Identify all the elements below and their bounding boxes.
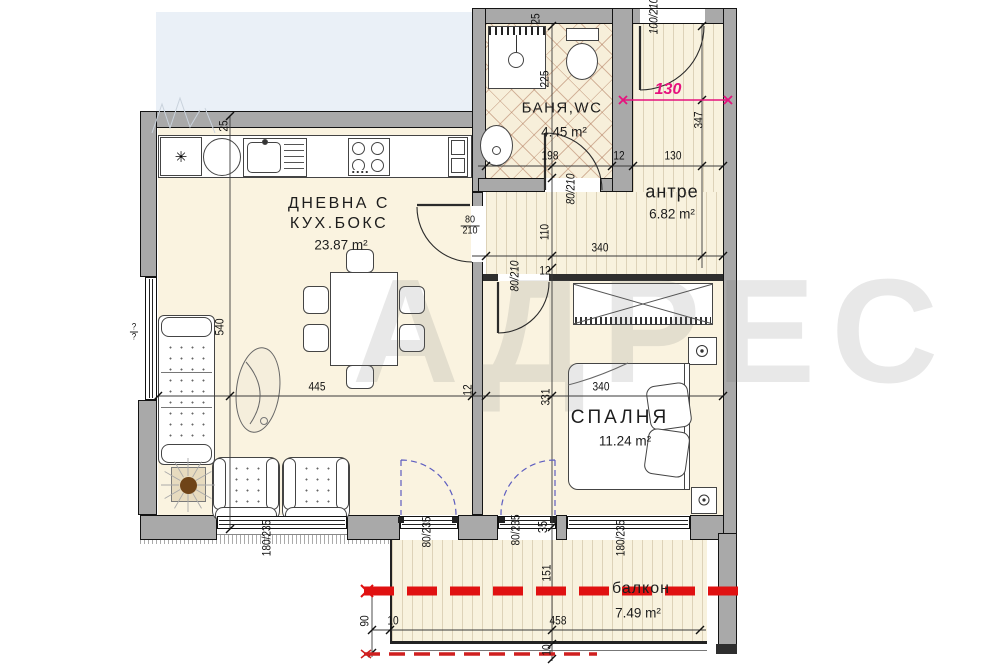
dim-bath-width: 198: [542, 151, 559, 163]
bathroom-area: 4.45 m²: [541, 125, 587, 140]
dim-bath-door: 80/210: [566, 174, 578, 205]
burner-icon: [371, 159, 384, 172]
dim-window-left: ??: [130, 323, 138, 342]
dim-balcony-door-bedroom: 80/235: [511, 515, 523, 546]
dim-35: 35: [537, 521, 550, 533]
door-hinge-block: [398, 517, 404, 523]
living-room-name-line2: КУХ.БОКС: [290, 215, 388, 233]
wall-left-upper: [140, 111, 157, 277]
burner-icon: [352, 142, 365, 155]
dim-living-door: 80210: [461, 216, 480, 237]
wall-bathroom-bottom-a: [478, 178, 545, 192]
bathtub-wall-edge: [489, 27, 545, 35]
dim-bedroom-width: 340: [593, 382, 610, 394]
wall-bottom-pier3: [556, 515, 567, 540]
agency-watermark: АДРЕС: [352, 258, 954, 406]
window-living: [217, 516, 347, 529]
door-hinge-block: [499, 517, 505, 523]
washbasin-drain: [492, 146, 501, 155]
armchair-arm: [336, 458, 349, 510]
balcony-name: балкон: [612, 580, 670, 598]
dim-hall-height: 347: [694, 112, 706, 129]
window-left: [145, 277, 157, 400]
balcony-area: 7.49 m²: [615, 606, 661, 621]
armchair-arm: [213, 458, 226, 510]
sofa-seam: [161, 372, 212, 373]
dim-living-length: 445: [309, 382, 326, 394]
dim-balcony-length: 458: [550, 616, 567, 628]
dim-wall12-living: 12: [463, 384, 475, 395]
door-hinge-block: [550, 517, 556, 523]
hallway-name: антре: [645, 182, 698, 203]
bedroom-name: СПАЛНЯ: [571, 407, 669, 429]
stove-knobs: [351, 170, 369, 174]
plant-icon: [180, 477, 197, 494]
nightstand: [691, 487, 717, 514]
armchair-arm: [266, 458, 279, 510]
wall-left-lower: [138, 400, 157, 515]
hallway-area: 6.82 m²: [649, 207, 695, 222]
armchair-arm: [283, 458, 296, 510]
wall-balcony-right: [718, 533, 737, 648]
door-hinge-block: [452, 517, 458, 523]
wall-living-top: [140, 111, 478, 128]
dim-window-living: 180/235: [262, 520, 274, 557]
wall-bottom-pier2: [458, 515, 498, 540]
dim-balcony-10b: 10: [542, 644, 554, 655]
sink-drainer: [284, 144, 304, 172]
dim-balcony-width: 151: [542, 565, 554, 582]
bathtub-drain-icon: [508, 52, 524, 68]
bathtub-faucet-line: [516, 35, 517, 53]
toilet-icon: [566, 43, 598, 80]
wall-living-bedroom-a: [472, 192, 483, 207]
dim-corridor-width: 110: [540, 224, 552, 240]
sofa-armrest: [161, 444, 212, 463]
window-bedroom: [567, 516, 690, 529]
sofa-armrest: [161, 317, 212, 337]
toilet-tank: [566, 28, 599, 41]
dim-bath-wall-25: 25: [531, 13, 543, 24]
washing-machine-icon: ✳: [160, 137, 202, 176]
bathroom-name: БАНЯ,WC: [522, 100, 603, 117]
living-room-name-line1: ДНЕВНА С: [288, 195, 390, 213]
burner-icon: [371, 142, 384, 155]
dim-bedroom-height: 331: [541, 389, 553, 406]
wall-bathroom-left: [472, 8, 486, 192]
dim-balcony-10a: 10: [387, 616, 398, 628]
dining-chair: [303, 286, 329, 314]
wall-bottom-left: [140, 515, 217, 540]
dim-bathtub-225: 225: [540, 71, 552, 88]
dining-chair: [303, 324, 329, 352]
living-room-area: 23.87 m²: [314, 238, 367, 253]
dim-kitchen-wall: 25: [219, 120, 231, 131]
faucet-icon: [262, 139, 268, 145]
sofa-cushions: [161, 338, 212, 443]
armchair-cushion: [297, 459, 335, 509]
adjacent-area: [156, 12, 478, 111]
fridge-inner: [451, 158, 465, 173]
dim-balcony-90: 90: [360, 615, 372, 626]
dim-wall12-bedroom: 12: [539, 266, 550, 278]
dim-living-width: 540: [215, 319, 227, 336]
sofa-seam: [161, 407, 212, 408]
dim-hall-width: 130: [665, 151, 682, 163]
dim-balcony-door-living: 80/235: [422, 517, 434, 548]
wall-bottom-pier1: [347, 515, 400, 540]
washer-glyph: ✳: [175, 149, 188, 166]
armchair-cushion: [227, 459, 265, 509]
sink-bowl: [247, 142, 281, 173]
dim-corridor-length: 340: [592, 243, 609, 255]
dim-bedroom-door: 80/210: [510, 261, 522, 292]
dim-window-bedroom: 180/235: [616, 520, 628, 557]
dim-wall12-bath: 12: [613, 151, 624, 163]
fridge-inner: [451, 140, 465, 155]
dim-pink-130: 130: [655, 82, 682, 98]
kitchen-round-unit: [203, 138, 241, 176]
wall-balcony-tip: [716, 644, 737, 654]
bedroom-area: 11.24 m²: [599, 434, 651, 449]
wall-bathroom-hall: [612, 8, 633, 192]
dim-entry-door: 100/210: [649, 0, 661, 34]
floor-plan: АДРЕС ✳: [0, 0, 1000, 666]
